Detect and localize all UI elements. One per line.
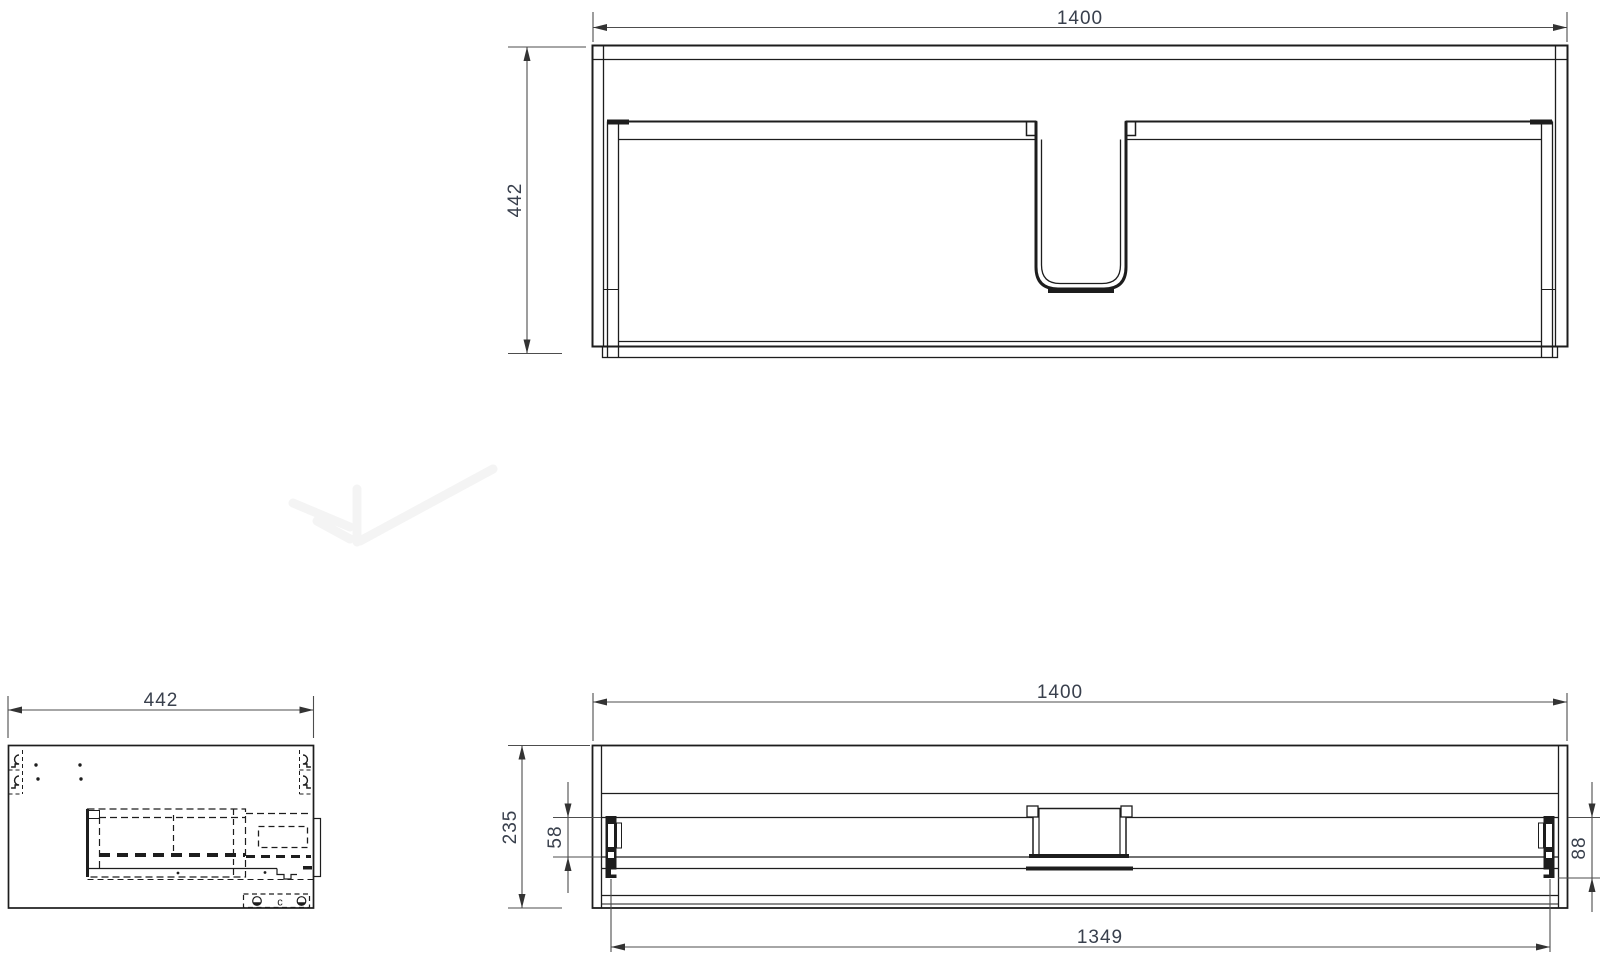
side-hardware-label: c: [277, 897, 283, 909]
roller-wheel-icon: [253, 897, 262, 906]
plan-drawer-front-band: [603, 347, 1558, 358]
side-screw-holes: [34, 763, 82, 780]
arrowhead: [565, 857, 572, 871]
dim-side-depth: 442: [8, 690, 314, 738]
arrowhead: [300, 707, 314, 714]
dim-front-height-value: 235: [500, 810, 521, 845]
arrowhead: [524, 340, 531, 354]
front-siphon-recess: [1026, 806, 1133, 869]
arrowhead: [1589, 878, 1596, 892]
arrowhead: [8, 707, 22, 714]
plan-sink-channel-inner: [1042, 140, 1121, 284]
front-horizontal-lines: [602, 794, 1559, 905]
arrowhead: [1589, 804, 1596, 818]
arrowhead: [1553, 699, 1567, 706]
plan-sink-channel-outer: [1036, 122, 1126, 290]
arrowhead: [519, 746, 526, 760]
technical-drawing-canvas: 1400 442: [0, 0, 1600, 967]
side-wall-bracket-right: [300, 750, 314, 794]
dim-front-bracket-value: 88: [1569, 836, 1590, 859]
plan-carcass-outline: [593, 46, 1568, 347]
side-drawer-hidden: [88, 809, 321, 880]
watermark-logo: [293, 469, 493, 542]
dim-plan-depth: 442: [505, 47, 586, 354]
dim-plan-depth-value: 442: [505, 183, 526, 218]
plan-band-end-mark-right: [1530, 120, 1552, 125]
plan-band-end-mark-left: [607, 120, 629, 125]
dim-front-width-value: 1400: [1037, 682, 1083, 703]
side-outline: [9, 746, 314, 909]
arrowhead: [593, 699, 607, 706]
plan-view: [593, 46, 1568, 358]
plan-drawer-back-band: [607, 120, 1553, 140]
arrowhead: [1553, 24, 1567, 31]
dim-front-width: 1400: [593, 682, 1567, 741]
arrowhead: [1536, 944, 1550, 951]
side-view: c: [9, 746, 321, 909]
side-slide-block-hidden: [259, 827, 308, 848]
roller-wheel-icon: [297, 897, 306, 906]
dim-plan-width-value: 1400: [1057, 8, 1103, 29]
dim-front-inner-width: 1349: [611, 879, 1550, 952]
arrowhead: [593, 24, 607, 31]
arrowhead: [611, 944, 625, 951]
front-outline: [593, 746, 1568, 909]
side-wall-bracket-left: [9, 750, 23, 794]
front-view: [593, 746, 1568, 909]
side-front-overhang: [314, 819, 321, 877]
dim-front-rail-value: 58: [545, 825, 566, 848]
plan-sink-channel: [1036, 122, 1126, 291]
drawing-sheet: 1400 442: [0, 0, 1600, 967]
arrowhead: [519, 894, 526, 908]
arrowhead: [524, 47, 531, 61]
side-roller-detail: c: [244, 894, 310, 909]
front-recess-tab-left: [1027, 806, 1038, 817]
dim-front-inner-width-value: 1349: [1077, 927, 1123, 948]
dim-plan-width: 1400: [593, 8, 1567, 42]
dim-front-bracket: 88: [1558, 782, 1600, 912]
front-recess-tab-right: [1121, 806, 1132, 817]
dim-side-depth-value: 442: [144, 690, 179, 711]
arrowhead: [565, 804, 572, 818]
